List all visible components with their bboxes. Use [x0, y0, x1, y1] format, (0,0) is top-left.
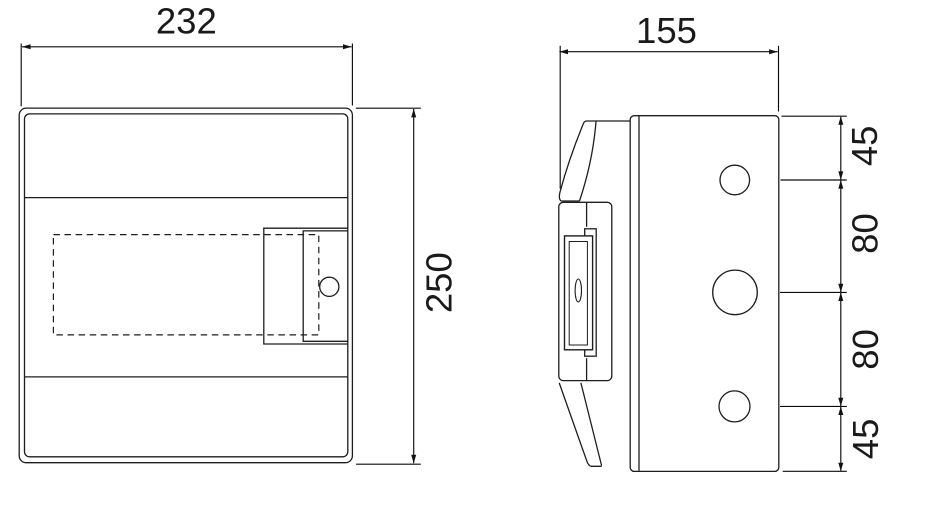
svg-text:232: 232 — [156, 1, 217, 42]
svg-text:155: 155 — [636, 10, 697, 51]
svg-text:250: 250 — [419, 252, 460, 313]
svg-text:80: 80 — [845, 213, 886, 254]
svg-text:45: 45 — [845, 419, 886, 460]
svg-text:45: 45 — [844, 125, 885, 166]
svg-text:80: 80 — [845, 329, 886, 370]
